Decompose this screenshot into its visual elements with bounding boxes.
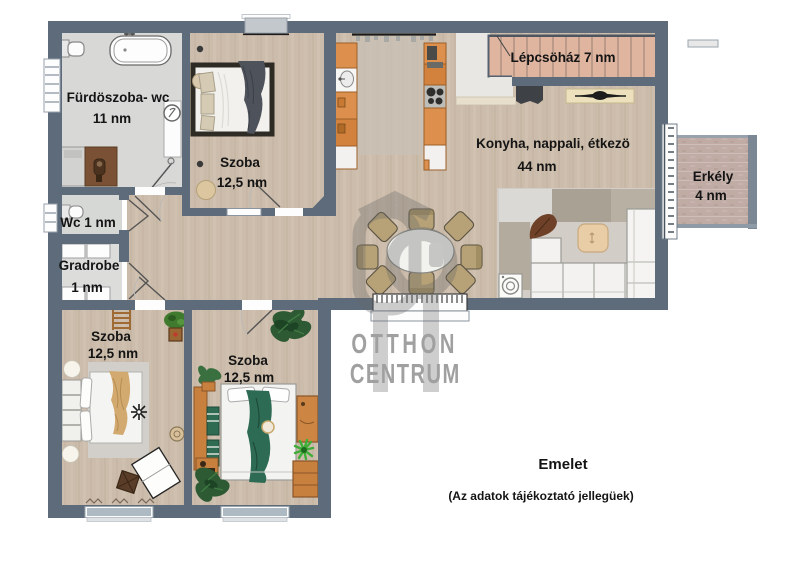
svg-text:12,5 nm: 12,5 nm: [88, 346, 138, 361]
svg-text:Erkély: Erkély: [693, 169, 734, 184]
svg-text:44 nm: 44 nm: [517, 159, 556, 174]
svg-text:12,5 nm: 12,5 nm: [217, 175, 267, 190]
svg-text:4 nm: 4 nm: [695, 188, 727, 203]
svg-text:OTTHON: OTTHON: [351, 329, 458, 360]
svg-text:Szoba: Szoba: [91, 329, 131, 344]
svg-text:Fürdöszoba- wc: Fürdöszoba- wc: [67, 90, 170, 105]
svg-text:12,5 nm: 12,5 nm: [224, 370, 274, 385]
svg-text:Emelet: Emelet: [538, 456, 587, 473]
svg-text:Lépcsöház 7 nm: Lépcsöház 7 nm: [510, 50, 615, 65]
svg-text:(Az adatok tájékoztató jellegü: (Az adatok tájékoztató jellegüek): [448, 489, 633, 503]
svg-text:Konyha, nappali, étkezö: Konyha, nappali, étkezö: [476, 136, 630, 151]
svg-text:Szoba: Szoba: [220, 155, 260, 170]
svg-text:Wc 1 nm: Wc 1 nm: [60, 215, 116, 230]
svg-text:11 nm: 11 nm: [93, 111, 131, 126]
svg-text:1 nm: 1 nm: [71, 280, 103, 295]
svg-text:Szoba: Szoba: [228, 353, 268, 368]
svg-text:Gradrobe: Gradrobe: [59, 258, 120, 273]
svg-text:CENTRUM: CENTRUM: [350, 359, 461, 390]
